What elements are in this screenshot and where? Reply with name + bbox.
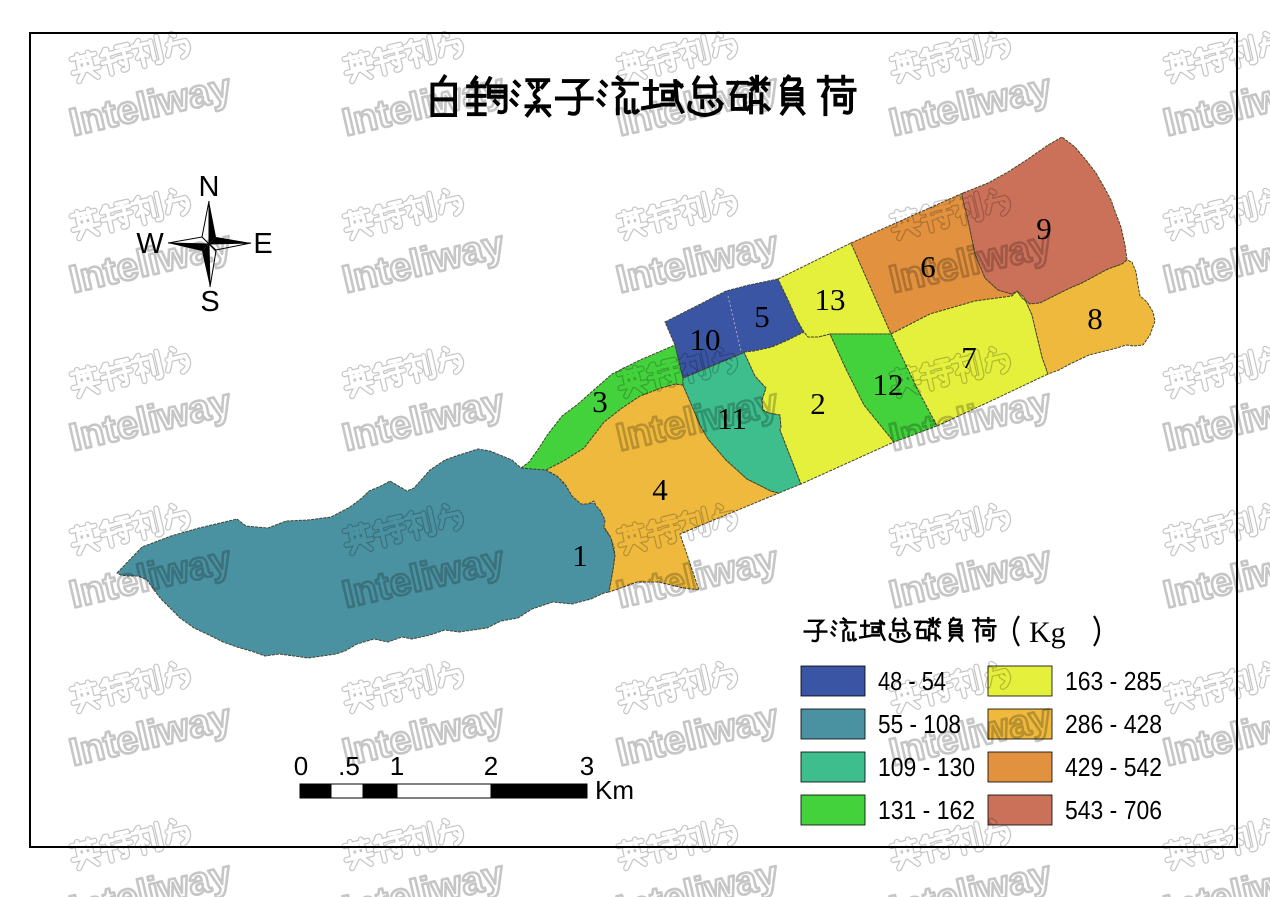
svg-text:Kg: Kg bbox=[1029, 616, 1066, 649]
svg-text:Km: Km bbox=[595, 775, 634, 805]
svg-text:543 - 706: 543 - 706 bbox=[1065, 795, 1162, 825]
svg-text:429 - 542: 429 - 542 bbox=[1065, 752, 1162, 782]
svg-text:8: 8 bbox=[1087, 301, 1103, 336]
svg-text:286 - 428: 286 - 428 bbox=[1065, 709, 1162, 739]
svg-text:E: E bbox=[253, 228, 272, 260]
svg-text:S: S bbox=[200, 286, 219, 318]
svg-text:3: 3 bbox=[580, 751, 594, 781]
svg-text:N: N bbox=[199, 171, 220, 203]
svg-text:131 - 162: 131 - 162 bbox=[878, 795, 975, 825]
svg-text:2: 2 bbox=[810, 386, 826, 421]
svg-text:3: 3 bbox=[592, 384, 608, 419]
svg-text:4: 4 bbox=[652, 472, 668, 507]
svg-text:0: 0 bbox=[294, 751, 308, 781]
svg-text:1: 1 bbox=[572, 538, 588, 573]
svg-text:2: 2 bbox=[484, 751, 498, 781]
svg-text:163 - 285: 163 - 285 bbox=[1065, 666, 1162, 696]
svg-text:13: 13 bbox=[815, 282, 846, 317]
svg-text:5: 5 bbox=[754, 299, 770, 334]
